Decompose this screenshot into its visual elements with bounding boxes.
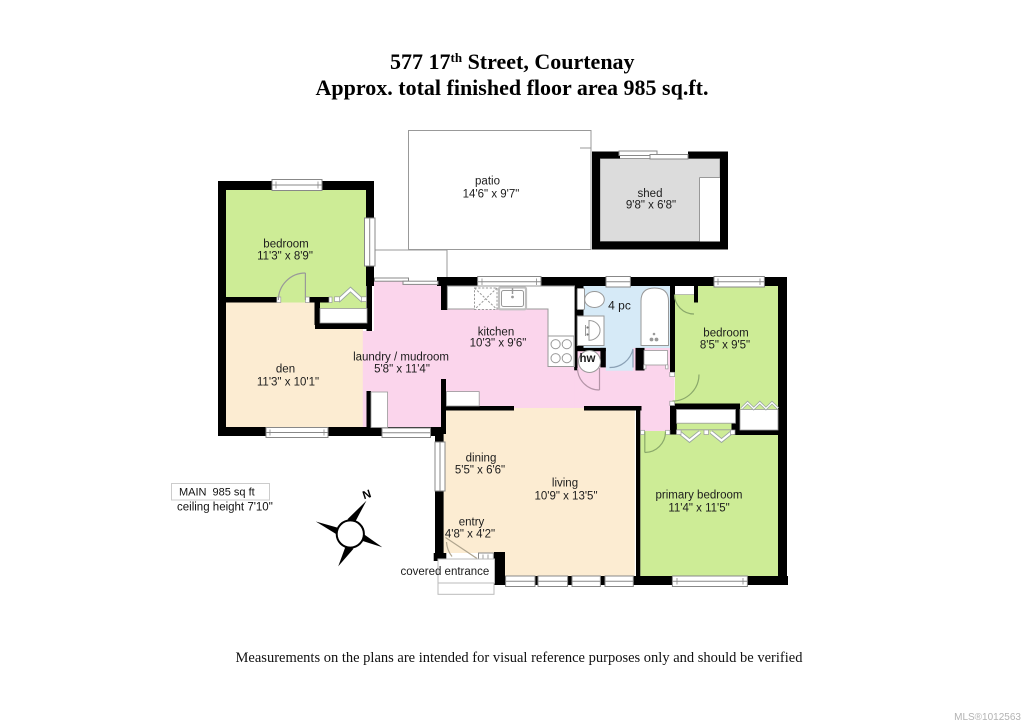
svg-text:living: living bbox=[552, 478, 578, 490]
svg-text:11'4" x 11'5": 11'4" x 11'5" bbox=[668, 503, 729, 515]
svg-text:MAIN: MAIN bbox=[179, 487, 207, 499]
svg-text:4 pc: 4 pc bbox=[608, 299, 631, 313]
svg-text:laundry / mudroom: laundry / mudroom bbox=[353, 352, 449, 364]
svg-text:4'8" x 4'2": 4'8" x 4'2" bbox=[445, 529, 495, 541]
svg-text:patio: patio bbox=[475, 176, 500, 188]
svg-text:ceiling height 7'10": ceiling height 7'10" bbox=[177, 502, 273, 514]
svg-text:shed: shed bbox=[638, 188, 663, 200]
svg-text:14'6" x 9'7": 14'6" x 9'7" bbox=[463, 189, 520, 201]
svg-text:985 sq ft: 985 sq ft bbox=[213, 487, 255, 499]
svg-text:5'8" x 11'4": 5'8" x 11'4" bbox=[374, 364, 430, 376]
svg-text:5'5" x 6'6": 5'5" x 6'6" bbox=[455, 465, 505, 477]
svg-text:Approx. total finished floor a: Approx. total finished floor area 985 sq… bbox=[316, 75, 709, 100]
svg-text:8'5" x 9'5": 8'5" x 9'5" bbox=[700, 340, 750, 352]
svg-text:MLS®1012563: MLS®1012563 bbox=[954, 712, 1021, 723]
svg-text:11'3" x 10'1": 11'3" x 10'1" bbox=[257, 377, 319, 389]
svg-text:10'3" x 9'6": 10'3" x 9'6" bbox=[470, 338, 527, 350]
svg-text:primary bedroom: primary bedroom bbox=[656, 490, 743, 502]
svg-text:entry: entry bbox=[459, 517, 485, 529]
svg-text:den: den bbox=[276, 364, 295, 376]
svg-text:577 17th Street, Courtenay: 577 17th Street, Courtenay bbox=[390, 49, 635, 74]
svg-text:hw: hw bbox=[580, 353, 596, 365]
svg-text:dining: dining bbox=[466, 453, 497, 465]
svg-text:11'3" x 8'9": 11'3" x 8'9" bbox=[257, 251, 313, 263]
svg-text:10'9" x 13'5": 10'9" x 13'5" bbox=[534, 491, 597, 503]
svg-text:bedroom: bedroom bbox=[703, 328, 748, 340]
svg-text:covered entrance: covered entrance bbox=[400, 566, 489, 578]
svg-text:9'8" x 6'8": 9'8" x 6'8" bbox=[626, 200, 676, 212]
svg-text:Measurements on the plans are: Measurements on the plans are intended f… bbox=[236, 650, 804, 666]
svg-text:bedroom: bedroom bbox=[263, 239, 308, 251]
